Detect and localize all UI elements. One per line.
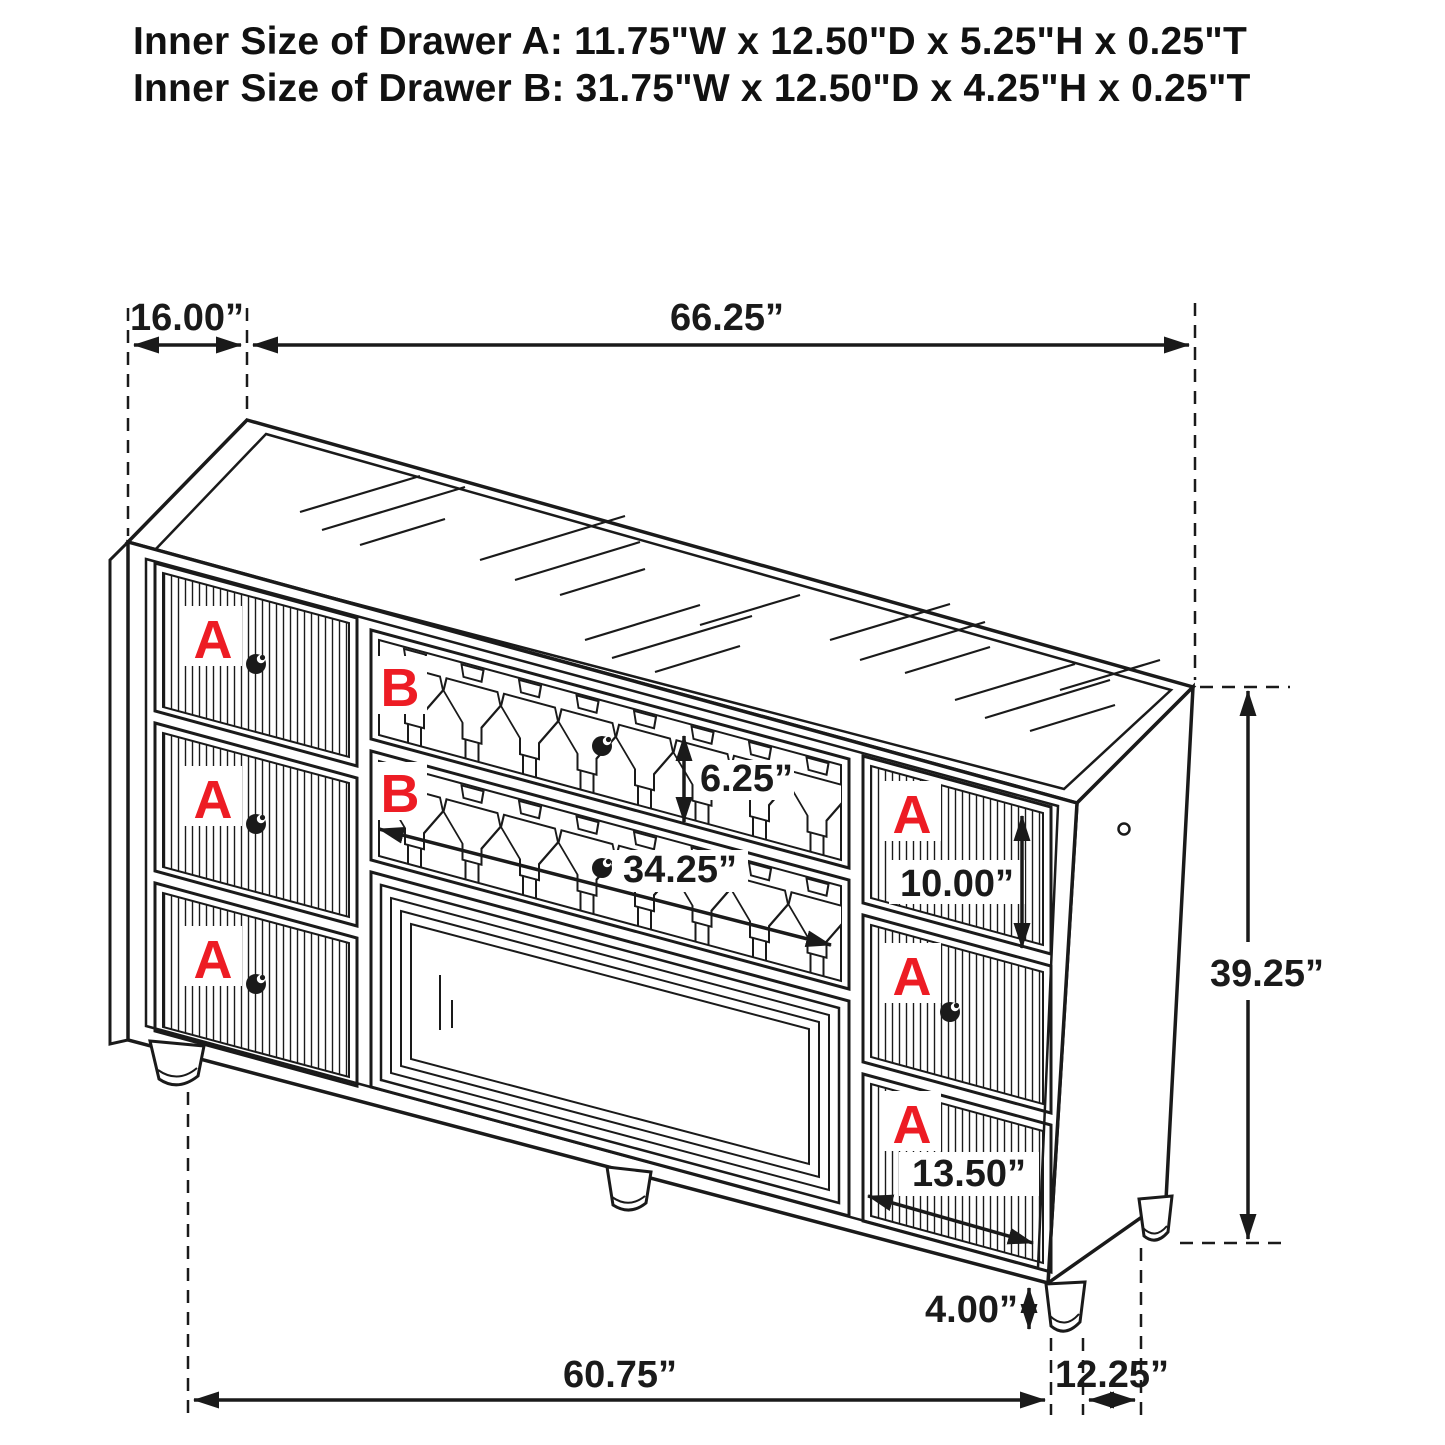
knob-b1 (592, 736, 612, 756)
dim-label-drawer-b-height: 6.25” (700, 758, 793, 800)
knob-a1 (246, 654, 266, 674)
dim-label-top-width: 66.25” (670, 297, 784, 339)
dim-label-base-width: 60.75” (563, 1354, 677, 1396)
dim-label-right-drawer-width: 13.50” (912, 1153, 1026, 1195)
label-drawer-a3: A (194, 930, 233, 990)
front-right-leg (1046, 1282, 1085, 1331)
label-drawer-a5: A (893, 947, 932, 1007)
dim-label-leg-height: 4.00” (925, 1289, 1018, 1331)
dim-label-drawer-b-width: 34.25” (623, 849, 737, 891)
left-side-edge (110, 542, 128, 1044)
knob-a5 (940, 1002, 960, 1022)
label-drawer-a4: A (893, 785, 932, 845)
front-left-leg (150, 1041, 204, 1085)
dim-label-base-depth: 12.25” (1055, 1354, 1169, 1396)
dresser-dimension-diagram: A A A B B A A A (0, 0, 1445, 1445)
label-drawer-b1: B (381, 658, 420, 718)
label-drawer-a2: A (194, 770, 233, 830)
label-drawer-a6: A (893, 1095, 932, 1155)
dim-label-overall-height: 39.25” (1210, 953, 1324, 995)
dim-label-top-depth: 16.00” (130, 297, 244, 339)
knob-a3 (246, 974, 266, 994)
knob-a2 (246, 814, 266, 834)
dim-label-right-drawer-height: 10.00” (900, 863, 1014, 905)
knob-b2 (592, 858, 612, 878)
label-drawer-b2: B (381, 764, 420, 824)
label-drawer-a1: A (194, 610, 233, 670)
